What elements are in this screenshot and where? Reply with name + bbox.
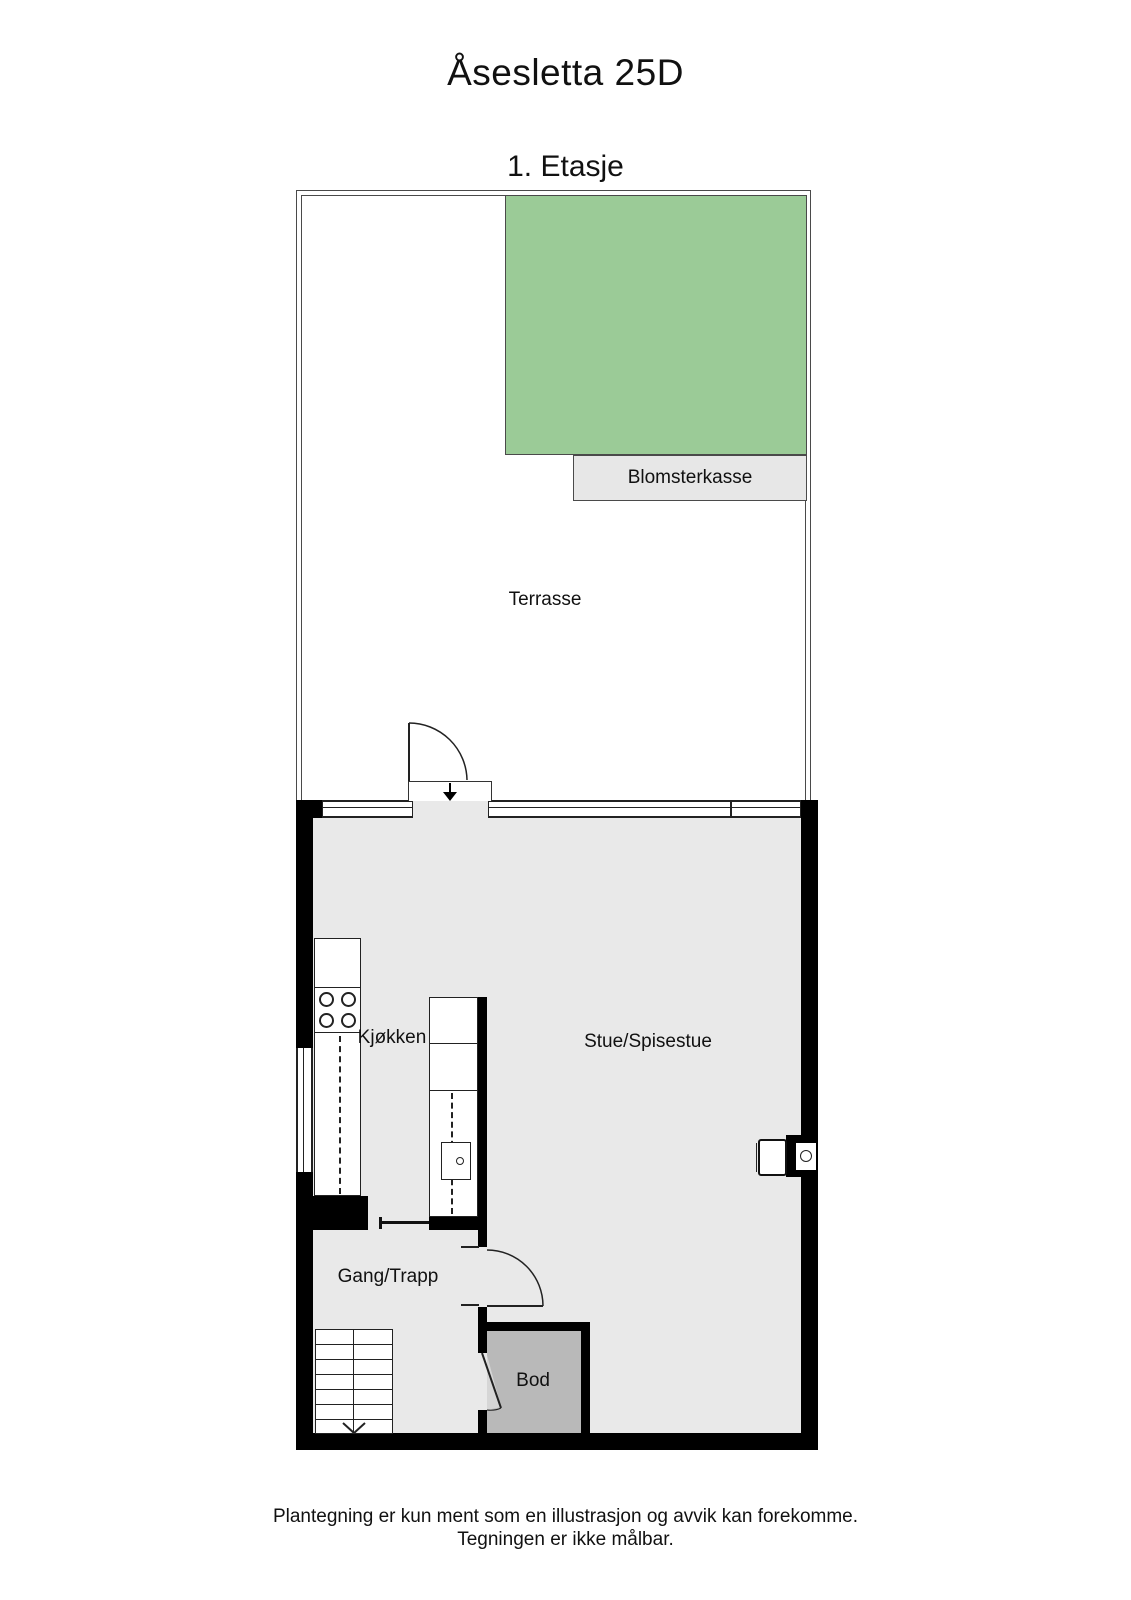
kitchen-label: Kjøkken (358, 1027, 427, 1049)
partition-wall-stub (478, 1307, 487, 1323)
page-title: Åsesletta 25D (0, 52, 1131, 94)
wood-stove-flue-icon (800, 1150, 812, 1162)
stove-burner-icon (319, 992, 334, 1007)
disclaimer-line-1: Plantegning er kun ment som en illustras… (0, 1505, 1131, 1528)
sliding-door (380, 1221, 429, 1224)
counter-divider-2 (314, 1032, 361, 1033)
storage-room-area: Bod (487, 1331, 581, 1433)
storage-wall-left-lower (478, 1410, 487, 1433)
flower-box: Blomsterkasse (573, 455, 807, 501)
window-top-middle (488, 800, 731, 818)
terrace-label: Terrasse (509, 589, 582, 611)
kitchen-island (429, 997, 478, 1217)
green-planted-area (505, 195, 807, 455)
terrace-door-opening (413, 800, 488, 818)
counter-divider-1 (314, 987, 361, 988)
living-dining-label: Stue/Spisestue (584, 1031, 712, 1053)
counter-dashed-line (339, 1036, 341, 1194)
hallway-stairs-label: Gang/Trapp (338, 1266, 439, 1288)
stove-burner-icon (319, 1013, 334, 1028)
floor-plan-page: Åsesletta 25D 1. Etasje Blomsterkasse Te… (0, 0, 1131, 1600)
window-top-right (731, 800, 801, 818)
storage-wall-left-upper (478, 1322, 487, 1353)
door-jamb-top (461, 1246, 479, 1248)
island-divider-1 (429, 1043, 478, 1044)
kitchen-wall-stub (313, 1196, 368, 1230)
terrace-door-threshold (408, 781, 492, 801)
floor-label: 1. Etasje (0, 150, 1131, 184)
stove-burner-icon (341, 992, 356, 1007)
wood-stove-icon (758, 1139, 787, 1176)
door-jamb-bottom (461, 1304, 479, 1306)
hall-partition-wall (478, 997, 487, 1247)
staircase (315, 1329, 393, 1434)
flower-box-label: Blomsterkasse (628, 467, 753, 489)
staircase-center-line (353, 1329, 354, 1434)
window-left-wall (296, 1048, 313, 1172)
sink-drain-icon (456, 1157, 464, 1165)
window-top-left (322, 800, 413, 818)
storage-wall-top (478, 1322, 590, 1331)
kitchen-counter (314, 938, 361, 1196)
wood-stove-handle (756, 1143, 757, 1172)
stove-burner-icon (341, 1013, 356, 1028)
storage-wall-right (581, 1322, 590, 1433)
island-divider-2 (429, 1090, 478, 1091)
disclaimer-line-2: Tegningen er ikke målbar. (0, 1528, 1131, 1551)
storage-label: Bod (516, 1370, 550, 1392)
